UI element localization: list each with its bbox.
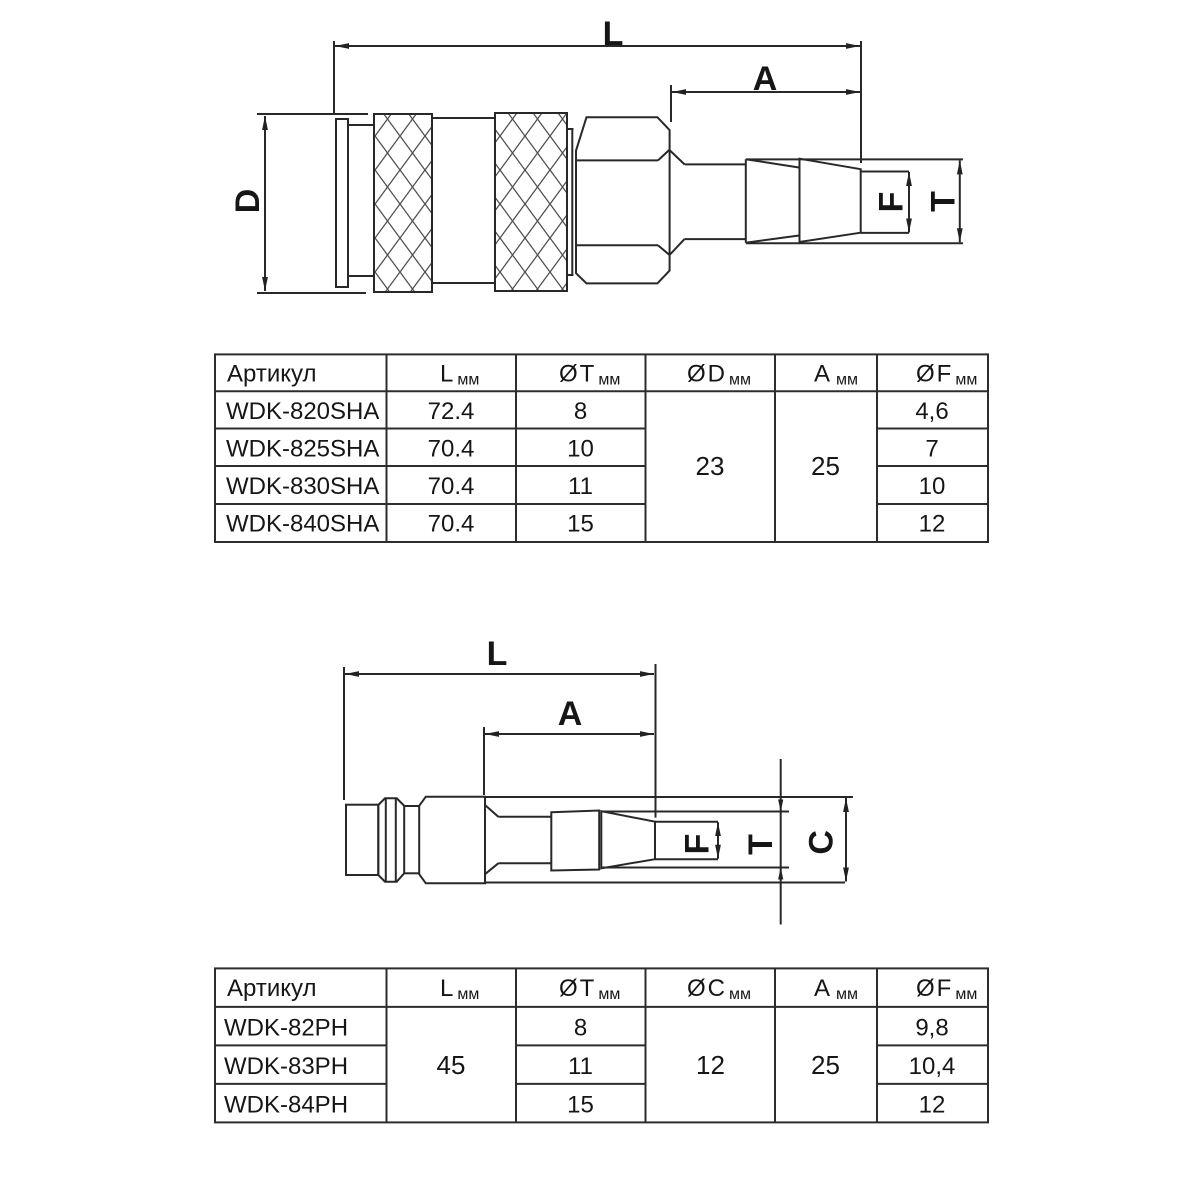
svg-text:15: 15 — [567, 511, 594, 538]
svg-text:WDK-82PH: WDK-82PH — [224, 1015, 348, 1042]
svg-text:10: 10 — [567, 436, 594, 463]
svg-text:Aмм: Aмм — [814, 975, 858, 1003]
svg-text:11: 11 — [568, 473, 593, 500]
svg-text:C: C — [803, 830, 841, 855]
svg-text:4,6: 4,6 — [915, 398, 948, 425]
svg-text:A: A — [753, 60, 778, 98]
svg-text:12: 12 — [919, 511, 946, 538]
svg-text:12: 12 — [919, 1092, 946, 1119]
svg-text:F: F — [873, 192, 911, 213]
svg-text:25: 25 — [811, 451, 840, 481]
svg-text:WDK-820SHA: WDK-820SHA — [226, 398, 379, 425]
svg-text:L: L — [487, 635, 508, 673]
svg-text:ØTмм: ØTмм — [559, 975, 620, 1003]
svg-text:15: 15 — [567, 1092, 594, 1119]
svg-text:70.4: 70.4 — [428, 436, 475, 463]
svg-text:10: 10 — [919, 473, 946, 500]
svg-text:L: L — [603, 15, 624, 53]
svg-text:12: 12 — [696, 1050, 725, 1080]
svg-text:25: 25 — [811, 1050, 840, 1080]
svg-text:11: 11 — [568, 1053, 593, 1080]
svg-text:WDK-840SHA: WDK-840SHA — [226, 511, 379, 538]
svg-text:Артикул: Артикул — [227, 975, 316, 1002]
svg-text:A: A — [558, 695, 583, 733]
svg-text:8: 8 — [574, 398, 587, 425]
svg-text:T: T — [925, 191, 963, 212]
svg-text:ØDмм: ØDмм — [687, 361, 751, 389]
svg-text:23: 23 — [696, 451, 725, 481]
svg-text:45: 45 — [437, 1050, 466, 1080]
svg-text:Lмм: Lмм — [440, 975, 479, 1003]
svg-text:WDK-84PH: WDK-84PH — [224, 1092, 348, 1119]
svg-text:70.4: 70.4 — [428, 473, 475, 500]
svg-text:Aмм: Aмм — [814, 361, 858, 389]
svg-text:70.4: 70.4 — [428, 511, 475, 538]
svg-text:T: T — [742, 834, 780, 855]
svg-text:72.4: 72.4 — [428, 398, 475, 425]
svg-text:8: 8 — [574, 1015, 587, 1042]
svg-text:ØCмм: ØCмм — [687, 975, 751, 1003]
svg-text:WDK-825SHA: WDK-825SHA — [226, 436, 379, 463]
svg-text:ØFмм: ØFмм — [916, 975, 977, 1003]
svg-text:WDK-830SHA: WDK-830SHA — [226, 473, 379, 500]
svg-text:D: D — [229, 189, 267, 214]
svg-text:10,4: 10,4 — [909, 1053, 956, 1080]
svg-text:WDK-83PH: WDK-83PH — [224, 1053, 348, 1080]
svg-text:7: 7 — [925, 436, 938, 463]
svg-text:Артикул: Артикул — [227, 361, 316, 388]
svg-text:F: F — [679, 834, 717, 855]
svg-text:9,8: 9,8 — [915, 1015, 948, 1042]
svg-text:ØTмм: ØTмм — [559, 361, 620, 389]
svg-text:ØFмм: ØFмм — [916, 361, 977, 389]
svg-text:Lмм: Lмм — [440, 361, 479, 389]
